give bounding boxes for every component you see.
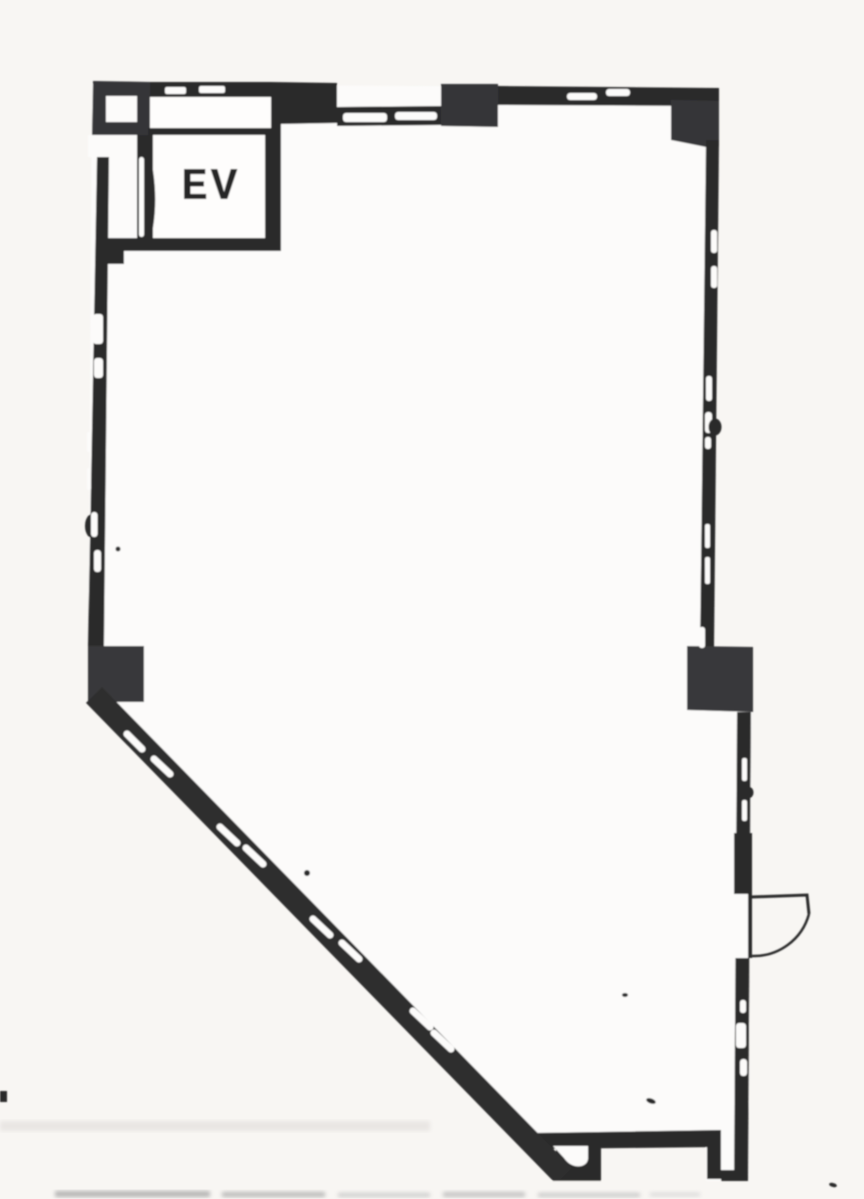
svg-text:EV: EV (181, 162, 240, 213)
